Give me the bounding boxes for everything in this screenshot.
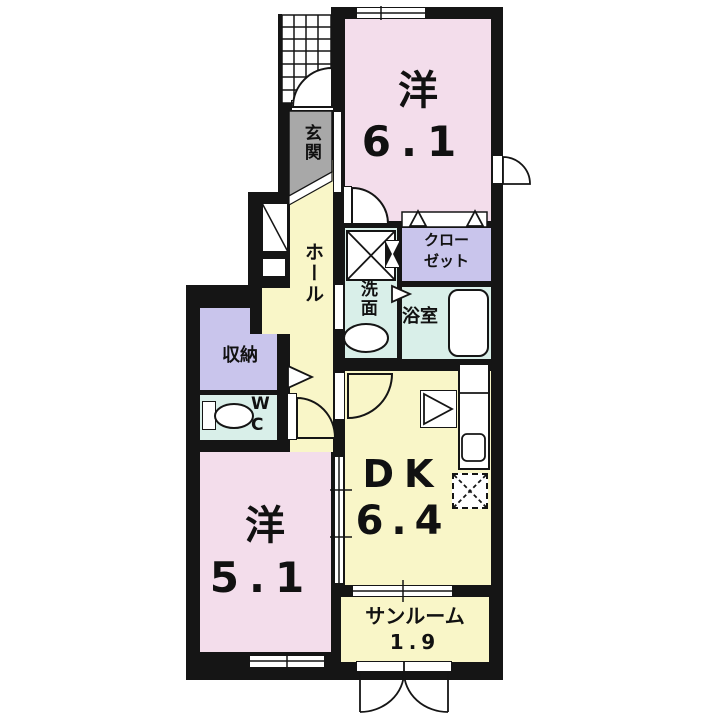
label-entrance: 玄関	[301, 124, 319, 162]
kitchen-stove	[420, 390, 457, 428]
floorplan-canvas: 洋 6.1 玄関 ホール 洗面 クロー ゼット 浴室 収納 W C DK 6.4…	[0, 0, 720, 720]
room-western-5-1	[200, 452, 331, 652]
label-western-5-1-name: 洋	[195, 505, 335, 547]
washroom-sliding-door	[334, 284, 344, 330]
label-hall: ホール	[302, 242, 322, 305]
exterior-staircase	[282, 15, 331, 103]
label-western-6-1-size: 6.1	[341, 120, 487, 164]
window-western-5-1	[249, 655, 325, 668]
door-leaf-exterior-right	[492, 155, 503, 184]
room-hall-extension	[262, 288, 290, 334]
label-storage: 収納	[222, 347, 258, 366]
label-western-6-1-name: 洋	[345, 70, 491, 112]
shoe-cabinet-low	[262, 258, 286, 277]
label-washroom: 洗面	[357, 280, 375, 318]
label-dk-name: DK	[330, 455, 476, 495]
entrance-door-threshold	[291, 100, 334, 111]
label-sunroom-size: 1.9	[341, 632, 489, 653]
door-leaf-western-6-1	[343, 186, 352, 224]
exterior-right-door-swing	[503, 157, 530, 184]
label-bathroom: 浴室	[402, 308, 438, 327]
shoe-cabinet-tall	[262, 203, 288, 252]
label-closet: クロー ゼット	[402, 230, 491, 272]
label-dk-size: 6.4	[330, 500, 476, 542]
bathtub	[448, 289, 489, 357]
label-sunroom-name: サンルーム	[341, 606, 489, 627]
folding-door-symbol-box	[385, 240, 400, 268]
sliding-window-sunroom	[352, 585, 453, 597]
kitchen-counter	[458, 363, 490, 470]
door-leaf-wc	[287, 393, 297, 440]
label-western-5-1-size: 5.1	[192, 556, 332, 600]
label-wc: W C	[251, 394, 270, 437]
french-door-threshold	[356, 661, 452, 672]
window-top	[356, 7, 426, 19]
door-leaf-dk	[334, 372, 345, 420]
toilet-tank	[202, 401, 216, 430]
